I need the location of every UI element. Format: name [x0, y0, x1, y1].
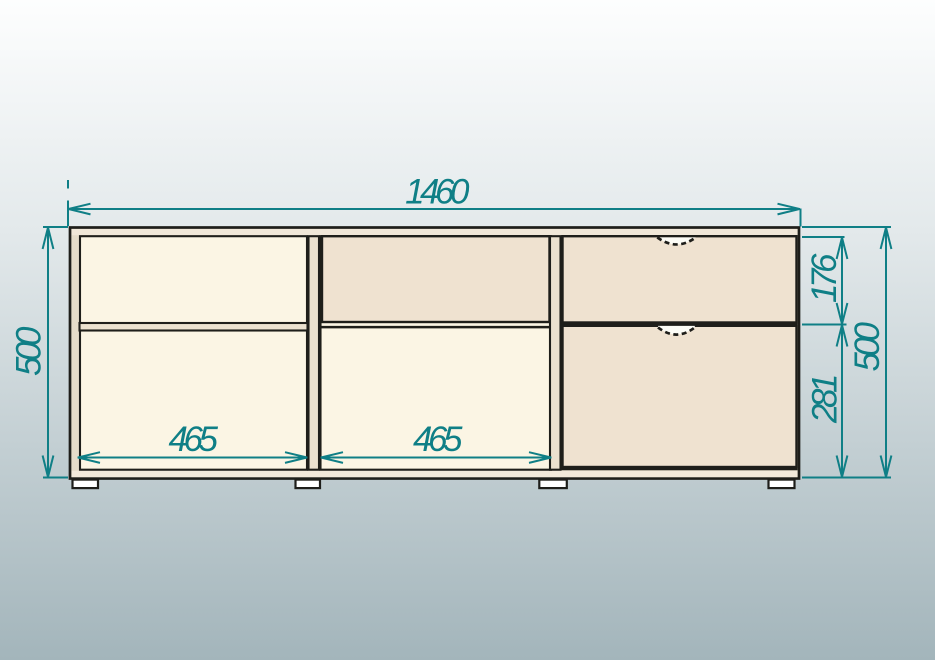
svg-text:465: 465 — [169, 420, 219, 459]
svg-text:500: 500 — [10, 326, 49, 376]
svg-text:500: 500 — [848, 322, 887, 372]
svg-text:176: 176 — [805, 253, 844, 303]
svg-text:1460: 1460 — [405, 173, 470, 212]
svg-text:281: 281 — [806, 376, 845, 424]
svg-text:465: 465 — [413, 420, 463, 459]
